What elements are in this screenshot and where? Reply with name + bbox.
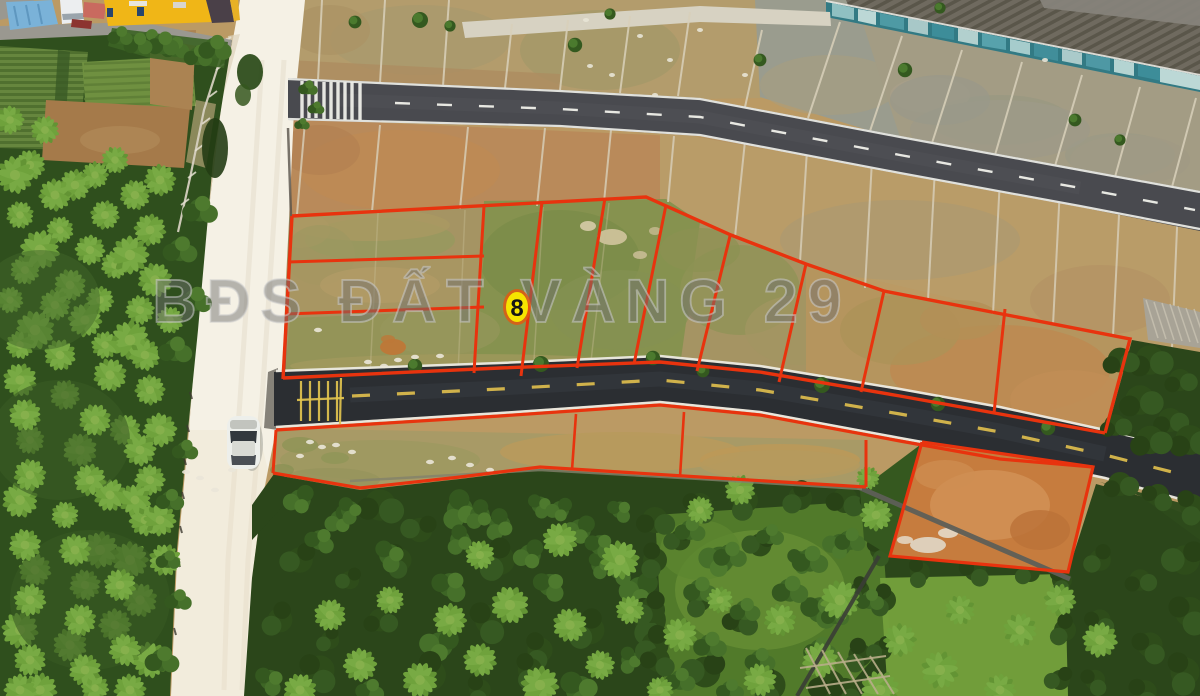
svg-text:BĐS ĐẤT VÀNG 29: BĐS ĐẤT VÀNG 29: [152, 267, 851, 335]
svg-text:8: 8: [510, 295, 523, 322]
